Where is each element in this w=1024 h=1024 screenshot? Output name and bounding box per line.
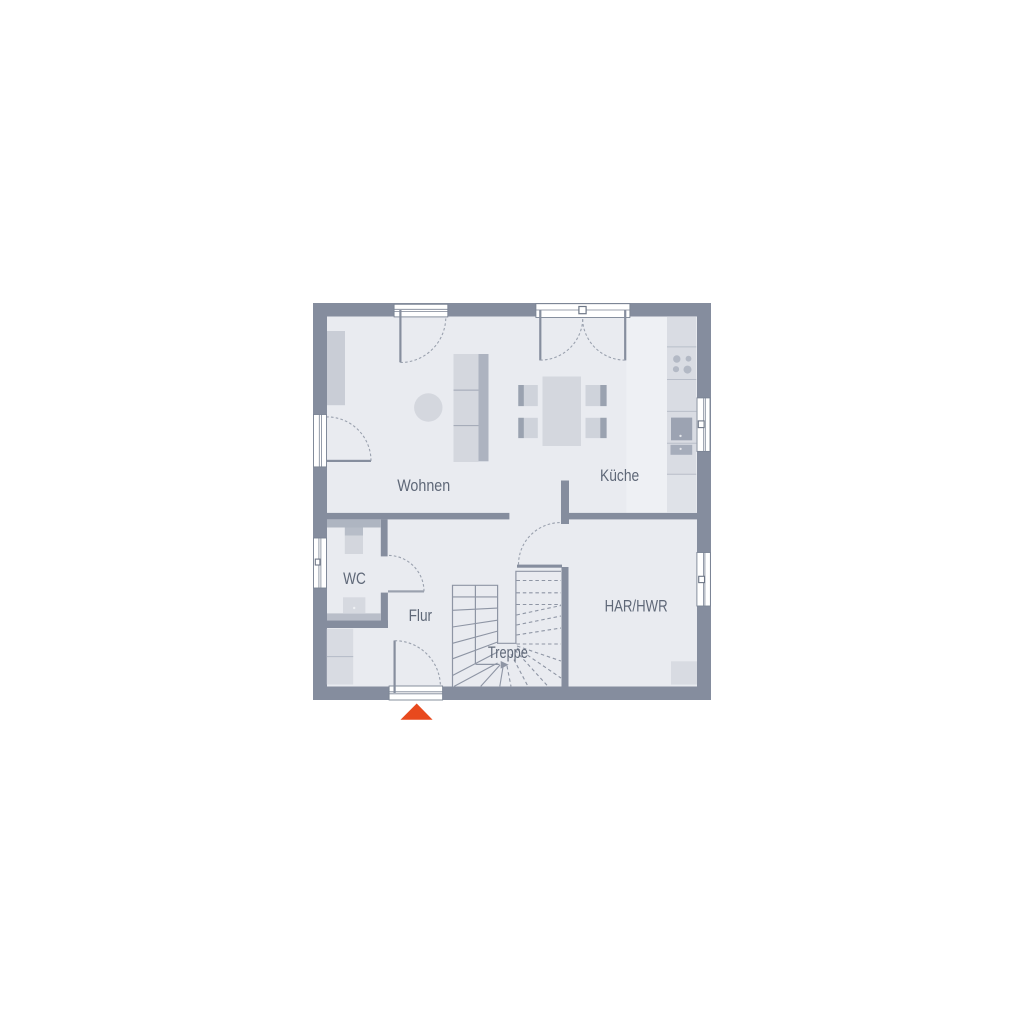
svg-text:Küche: Küche bbox=[600, 466, 639, 485]
svg-text:HAR/HWR: HAR/HWR bbox=[605, 596, 668, 615]
svg-text:Treppe: Treppe bbox=[488, 643, 528, 662]
svg-text:Wohnen: Wohnen bbox=[397, 476, 450, 495]
svg-text:Flur: Flur bbox=[409, 606, 433, 625]
svg-text:WC: WC bbox=[343, 569, 366, 588]
